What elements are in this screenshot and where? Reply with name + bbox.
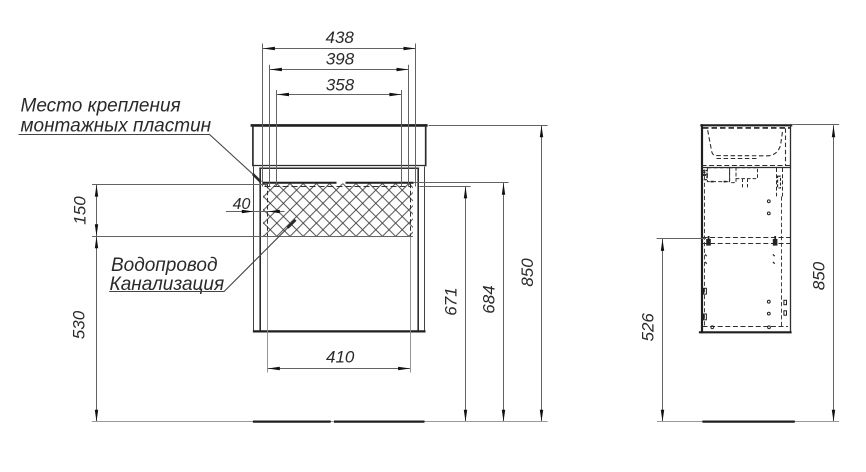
svg-text:398: 398 xyxy=(326,50,355,69)
svg-text:684: 684 xyxy=(479,285,498,313)
svg-text:358: 358 xyxy=(326,76,355,95)
svg-text:526: 526 xyxy=(638,313,657,342)
svg-text:40: 40 xyxy=(233,196,251,213)
svg-text:438: 438 xyxy=(326,28,355,47)
svg-text:150: 150 xyxy=(71,196,90,225)
svg-text:850: 850 xyxy=(810,261,829,290)
svg-text:Водопровод: Водопровод xyxy=(111,255,217,276)
svg-text:671: 671 xyxy=(442,287,461,315)
svg-text:Место крепления: Место крепления xyxy=(21,95,181,116)
svg-text:монтажных пластин: монтажных пластин xyxy=(21,115,212,136)
svg-text:410: 410 xyxy=(326,348,355,367)
svg-text:850: 850 xyxy=(518,258,537,287)
svg-text:530: 530 xyxy=(69,310,88,339)
